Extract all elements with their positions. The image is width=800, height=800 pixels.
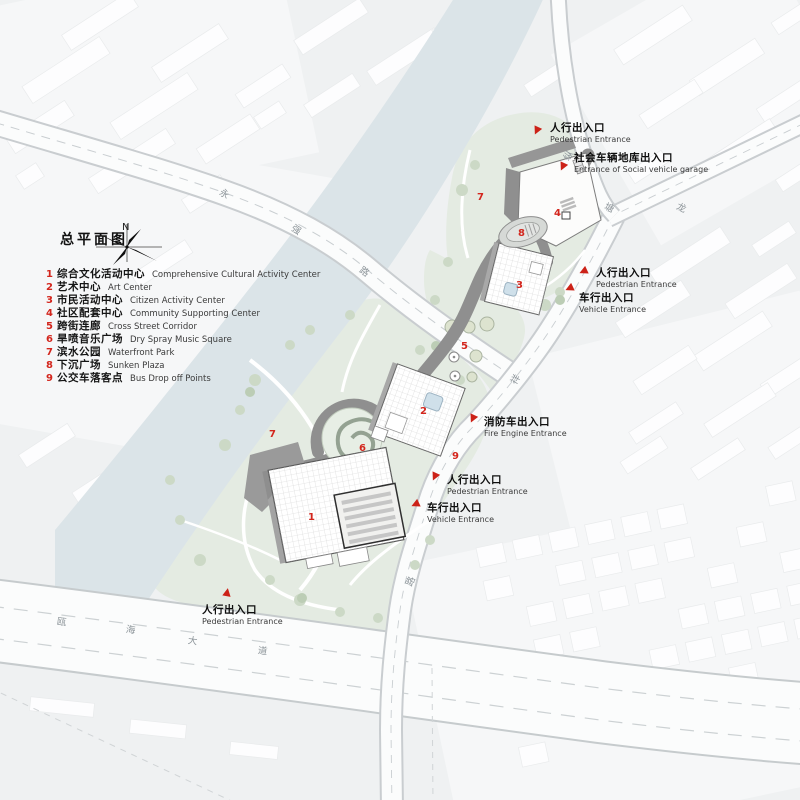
master-plan-map: N <box>0 0 800 800</box>
site-plan-canvas: N 总平面图 1综合文化活动中心Comprehensive Cultural A… <box>0 0 800 800</box>
compass-north-label: N <box>122 222 129 233</box>
